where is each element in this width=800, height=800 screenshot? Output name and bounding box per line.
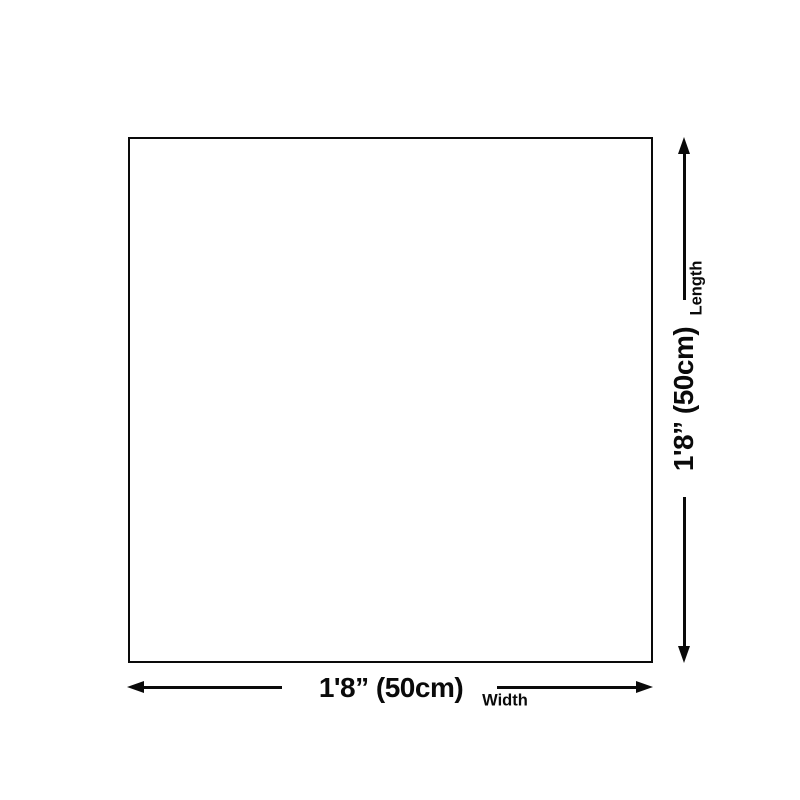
length-arrowhead-down-icon <box>678 646 690 663</box>
width-dimension-line-left <box>142 686 282 689</box>
width-dimension-label: Width <box>482 692 528 711</box>
length-dimension-line-bottom <box>683 497 686 646</box>
product-outline <box>128 137 653 663</box>
width-dimension-value: 1'8” (50cm) <box>319 672 463 704</box>
length-dimension-value: 1'8” (50cm) <box>668 327 700 471</box>
width-arrowhead-right-icon <box>636 681 653 693</box>
length-dimension-label: Length <box>688 261 707 316</box>
dimension-diagram: 1'8” (50cm) Width Length 1'8” (50cm) <box>0 0 800 800</box>
width-dimension-line-right <box>497 686 637 689</box>
length-dimension-line-top <box>683 152 686 300</box>
